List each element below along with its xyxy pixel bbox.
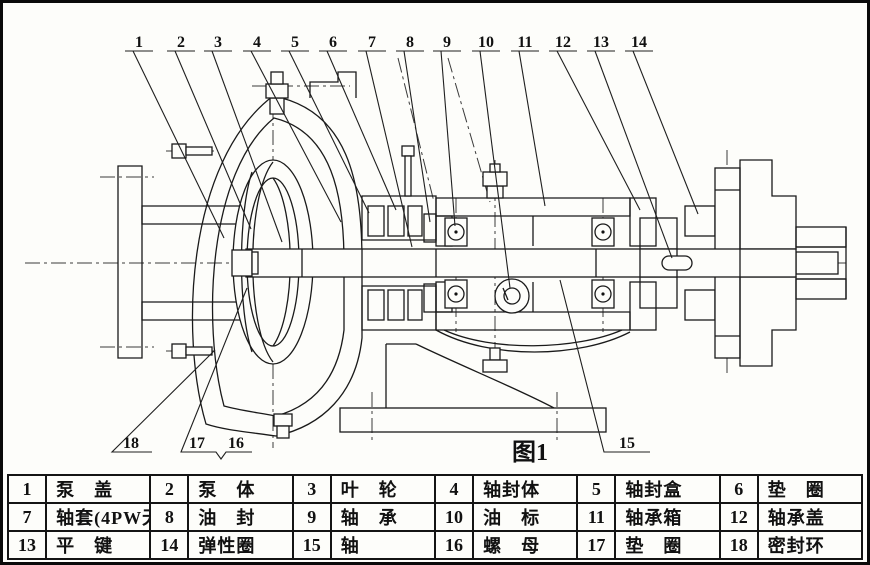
callout-1: 1 bbox=[135, 34, 143, 51]
callout-7: 7 bbox=[368, 34, 376, 51]
callout-14: 14 bbox=[631, 34, 647, 51]
table-row: 13 平 键 14 弹性圈 15 轴 16 螺 母 17 垫 圈 18 密封环 bbox=[8, 531, 862, 559]
packing-ring bbox=[368, 290, 384, 320]
part-name: 泵 盖 bbox=[46, 475, 150, 503]
oil-gauge bbox=[495, 279, 529, 313]
cover-bolt bbox=[172, 344, 186, 358]
impeller-washer bbox=[252, 252, 258, 274]
table-row: 7 轴套(4PW无) 8 油 封 9 轴 承 10 油 标 11 轴承箱 12 … bbox=[8, 503, 862, 531]
shaft bbox=[232, 249, 796, 277]
part-no: 4 bbox=[435, 475, 473, 503]
part-no: 6 bbox=[720, 475, 758, 503]
callout-4: 4 bbox=[253, 34, 261, 51]
part-name: 油 封 bbox=[188, 503, 292, 531]
part-name: 油 标 bbox=[473, 503, 577, 531]
part-no: 5 bbox=[577, 475, 615, 503]
bearing-cover bbox=[630, 282, 656, 330]
parts-table-container: 1 泵 盖 2 泵 体 3 叶 轮 4 轴封体 5 轴封盒 6 垫 圈 7 轴套… bbox=[7, 474, 863, 560]
part-name: 轴承箱 bbox=[615, 503, 719, 531]
part-name: 弹性圈 bbox=[188, 531, 292, 559]
callout-2: 2 bbox=[177, 34, 185, 51]
part-name: 密封环 bbox=[758, 531, 862, 559]
callout-5: 5 bbox=[291, 34, 299, 51]
callout-11: 11 bbox=[517, 34, 532, 51]
part-name: 垫 圈 bbox=[758, 475, 862, 503]
part-no: 1 bbox=[8, 475, 46, 503]
pump-cross-section-drawing: 1 2 3 4 5 6 7 8 9 10 11 12 13 14 18 17 1… bbox=[3, 3, 867, 474]
callout-10: 10 bbox=[478, 34, 494, 51]
callout-17: 17 bbox=[189, 435, 205, 452]
elastic-ring bbox=[685, 290, 715, 320]
part-no: 10 bbox=[435, 503, 473, 531]
part-no: 13 bbox=[8, 531, 46, 559]
oil-seal bbox=[408, 290, 422, 320]
part-name: 轴封盒 bbox=[615, 475, 719, 503]
part-no: 12 bbox=[720, 503, 758, 531]
support-foot bbox=[340, 344, 606, 432]
foot-base-plate bbox=[340, 408, 606, 432]
oil-sump bbox=[436, 330, 630, 352]
part-name: 叶 轮 bbox=[331, 475, 435, 503]
packing-ring bbox=[388, 290, 404, 320]
parts-table: 1 泵 盖 2 泵 体 3 叶 轮 4 轴封体 5 轴封盒 6 垫 圈 7 轴套… bbox=[7, 474, 863, 560]
part-name: 轴 承 bbox=[331, 503, 435, 531]
callout-12: 12 bbox=[555, 34, 571, 51]
part-name: 轴套(4PW无) bbox=[46, 503, 150, 531]
callout-9: 9 bbox=[443, 34, 451, 51]
part-no: 15 bbox=[293, 531, 331, 559]
figure-caption: 图1 bbox=[512, 439, 548, 466]
key-slot bbox=[662, 256, 692, 270]
packing-ring bbox=[368, 206, 384, 236]
pump-figure-page: 1 2 3 4 5 6 7 8 9 10 11 12 13 14 18 17 1… bbox=[0, 0, 870, 565]
part-no: 14 bbox=[150, 531, 188, 559]
packing-ring bbox=[388, 206, 404, 236]
part-no: 3 bbox=[293, 475, 331, 503]
oil-drain-plug bbox=[483, 360, 507, 372]
part-name: 泵 体 bbox=[188, 475, 292, 503]
part-name: 平 键 bbox=[46, 531, 150, 559]
part-no: 2 bbox=[150, 475, 188, 503]
oil-fill-plug bbox=[483, 172, 507, 186]
callout-16: 16 bbox=[228, 435, 244, 452]
coupling-right-hub bbox=[740, 160, 796, 249]
callout-15: 15 bbox=[619, 435, 635, 452]
gland-stud bbox=[402, 146, 414, 156]
part-name: 轴封体 bbox=[473, 475, 577, 503]
part-no: 9 bbox=[293, 503, 331, 531]
callout-13: 13 bbox=[593, 34, 609, 51]
part-no: 16 bbox=[435, 531, 473, 559]
part-name: 垫 圈 bbox=[615, 531, 719, 559]
elastic-ring bbox=[685, 206, 715, 236]
part-no: 8 bbox=[150, 503, 188, 531]
part-name: 螺 母 bbox=[473, 531, 577, 559]
oil-seal bbox=[408, 206, 422, 236]
callout-8: 8 bbox=[406, 34, 414, 51]
impeller-nut bbox=[232, 250, 252, 276]
callout-6: 6 bbox=[329, 34, 337, 51]
discharge-flange-phantom bbox=[310, 72, 356, 98]
part-name: 轴承盖 bbox=[758, 503, 862, 531]
part-no: 18 bbox=[720, 531, 758, 559]
part-no: 11 bbox=[577, 503, 615, 531]
table-row: 1 泵 盖 2 泵 体 3 叶 轮 4 轴封体 5 轴封盒 6 垫 圈 bbox=[8, 475, 862, 503]
part-no: 7 bbox=[8, 503, 46, 531]
callout-18: 18 bbox=[123, 435, 139, 452]
shaft-seal bbox=[362, 146, 436, 330]
casing-drain-plug bbox=[274, 414, 292, 426]
callout-3: 3 bbox=[214, 34, 222, 51]
driver-shaft-stub bbox=[796, 252, 838, 274]
part-name: 轴 bbox=[331, 531, 435, 559]
part-no: 17 bbox=[577, 531, 615, 559]
